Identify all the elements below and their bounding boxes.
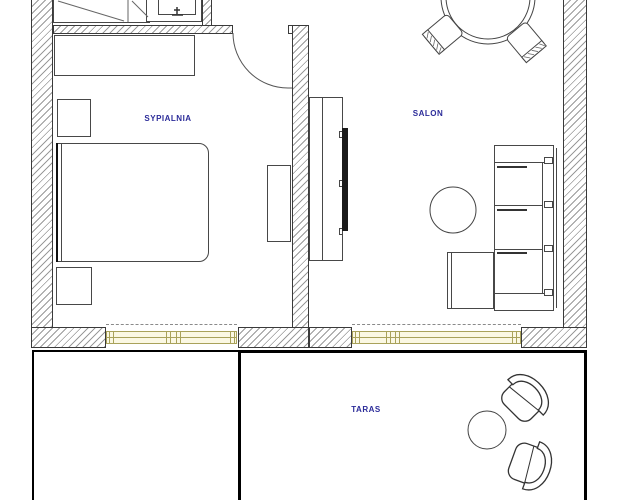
- living-window-midline: [353, 337, 520, 338]
- tv-console: [309, 97, 343, 261]
- dining-chair-left: [422, 14, 463, 54]
- dining-chair-right: [506, 21, 546, 62]
- terrace-left-box-top: [33, 350, 239, 352]
- ottoman-edge-line: [451, 253, 452, 308]
- window-tick: [176, 331, 177, 344]
- window-tick: [355, 331, 356, 344]
- tv-console-divider: [322, 98, 323, 260]
- sofa-back-clip: [544, 289, 553, 296]
- window-tick: [390, 331, 391, 344]
- nightstand-top: [57, 99, 91, 137]
- nightstand-bottom: [56, 267, 92, 305]
- living-window-dashed-line: [352, 324, 521, 325]
- tv: [342, 128, 348, 231]
- bed-headboard: [56, 143, 62, 262]
- terrace-armchair-2: [504, 435, 558, 495]
- round-side-table: [468, 411, 506, 449]
- wall-bottom-living-left: [309, 327, 352, 348]
- wall-bedroom-top: [53, 25, 233, 34]
- double-bed: [56, 143, 209, 262]
- window-tick: [359, 331, 360, 344]
- wall-bottom-living-right: [521, 327, 587, 348]
- window-tick: [170, 331, 171, 344]
- bedroom-window-midline: [107, 337, 236, 338]
- round-dining-table: [441, 0, 535, 44]
- window-tick: [386, 331, 387, 344]
- sofa-backrest-line: [542, 163, 543, 293]
- terrace-outline-left: [238, 350, 241, 500]
- round-coffee-table: [430, 187, 476, 233]
- wall-sink-side: [202, 0, 212, 26]
- sofa-pillow-line: [497, 209, 527, 211]
- dresser: [267, 165, 291, 242]
- window-tick: [516, 331, 517, 344]
- bedroom-label: SYPIALNIA: [130, 114, 206, 123]
- sofa-outer-back-line: [556, 148, 557, 308]
- bedroom-window-dashed-line: [106, 324, 237, 325]
- floor-plan: SYPIALNIA SALON TARAS: [0, 0, 620, 500]
- window-tick: [166, 331, 167, 344]
- window-tick: [109, 331, 110, 344]
- sofa-cushion-divider: [495, 249, 542, 250]
- terrace-left-box-side: [32, 350, 34, 500]
- door-jamb: [288, 25, 293, 34]
- window-tick: [113, 331, 114, 344]
- washbasin: [158, 0, 196, 15]
- ottoman: [447, 252, 494, 309]
- sofa: [494, 145, 554, 311]
- wall-middle: [292, 25, 309, 328]
- wardrobe: [53, 0, 150, 23]
- sideboard: [54, 35, 195, 76]
- wall-bottom-bedroom-left: [31, 327, 106, 348]
- window-tick: [180, 331, 181, 344]
- sofa-pillow-line: [497, 252, 527, 254]
- window-tick: [399, 331, 400, 344]
- sofa-cushion-divider: [495, 205, 542, 206]
- terrace-armchair-1: [494, 366, 557, 429]
- wall-left: [31, 0, 53, 348]
- window-tick: [230, 331, 231, 344]
- window-tick: [395, 331, 396, 344]
- living-room-label: SALON: [398, 109, 458, 118]
- sofa-back-clip: [544, 201, 553, 208]
- terrace-label: TARAS: [336, 405, 396, 414]
- wall-right: [563, 0, 587, 348]
- sofa-back-clip: [544, 245, 553, 252]
- door-swing-arc: [233, 33, 292, 88]
- sofa-pillow-line: [497, 166, 527, 168]
- window-tick: [512, 331, 513, 344]
- window-tick: [234, 331, 235, 344]
- terrace-outline-right: [584, 351, 587, 500]
- sofa-back-clip: [544, 157, 553, 164]
- terrace-outline-top: [238, 350, 587, 353]
- wall-bottom-bedroom-right: [238, 327, 309, 348]
